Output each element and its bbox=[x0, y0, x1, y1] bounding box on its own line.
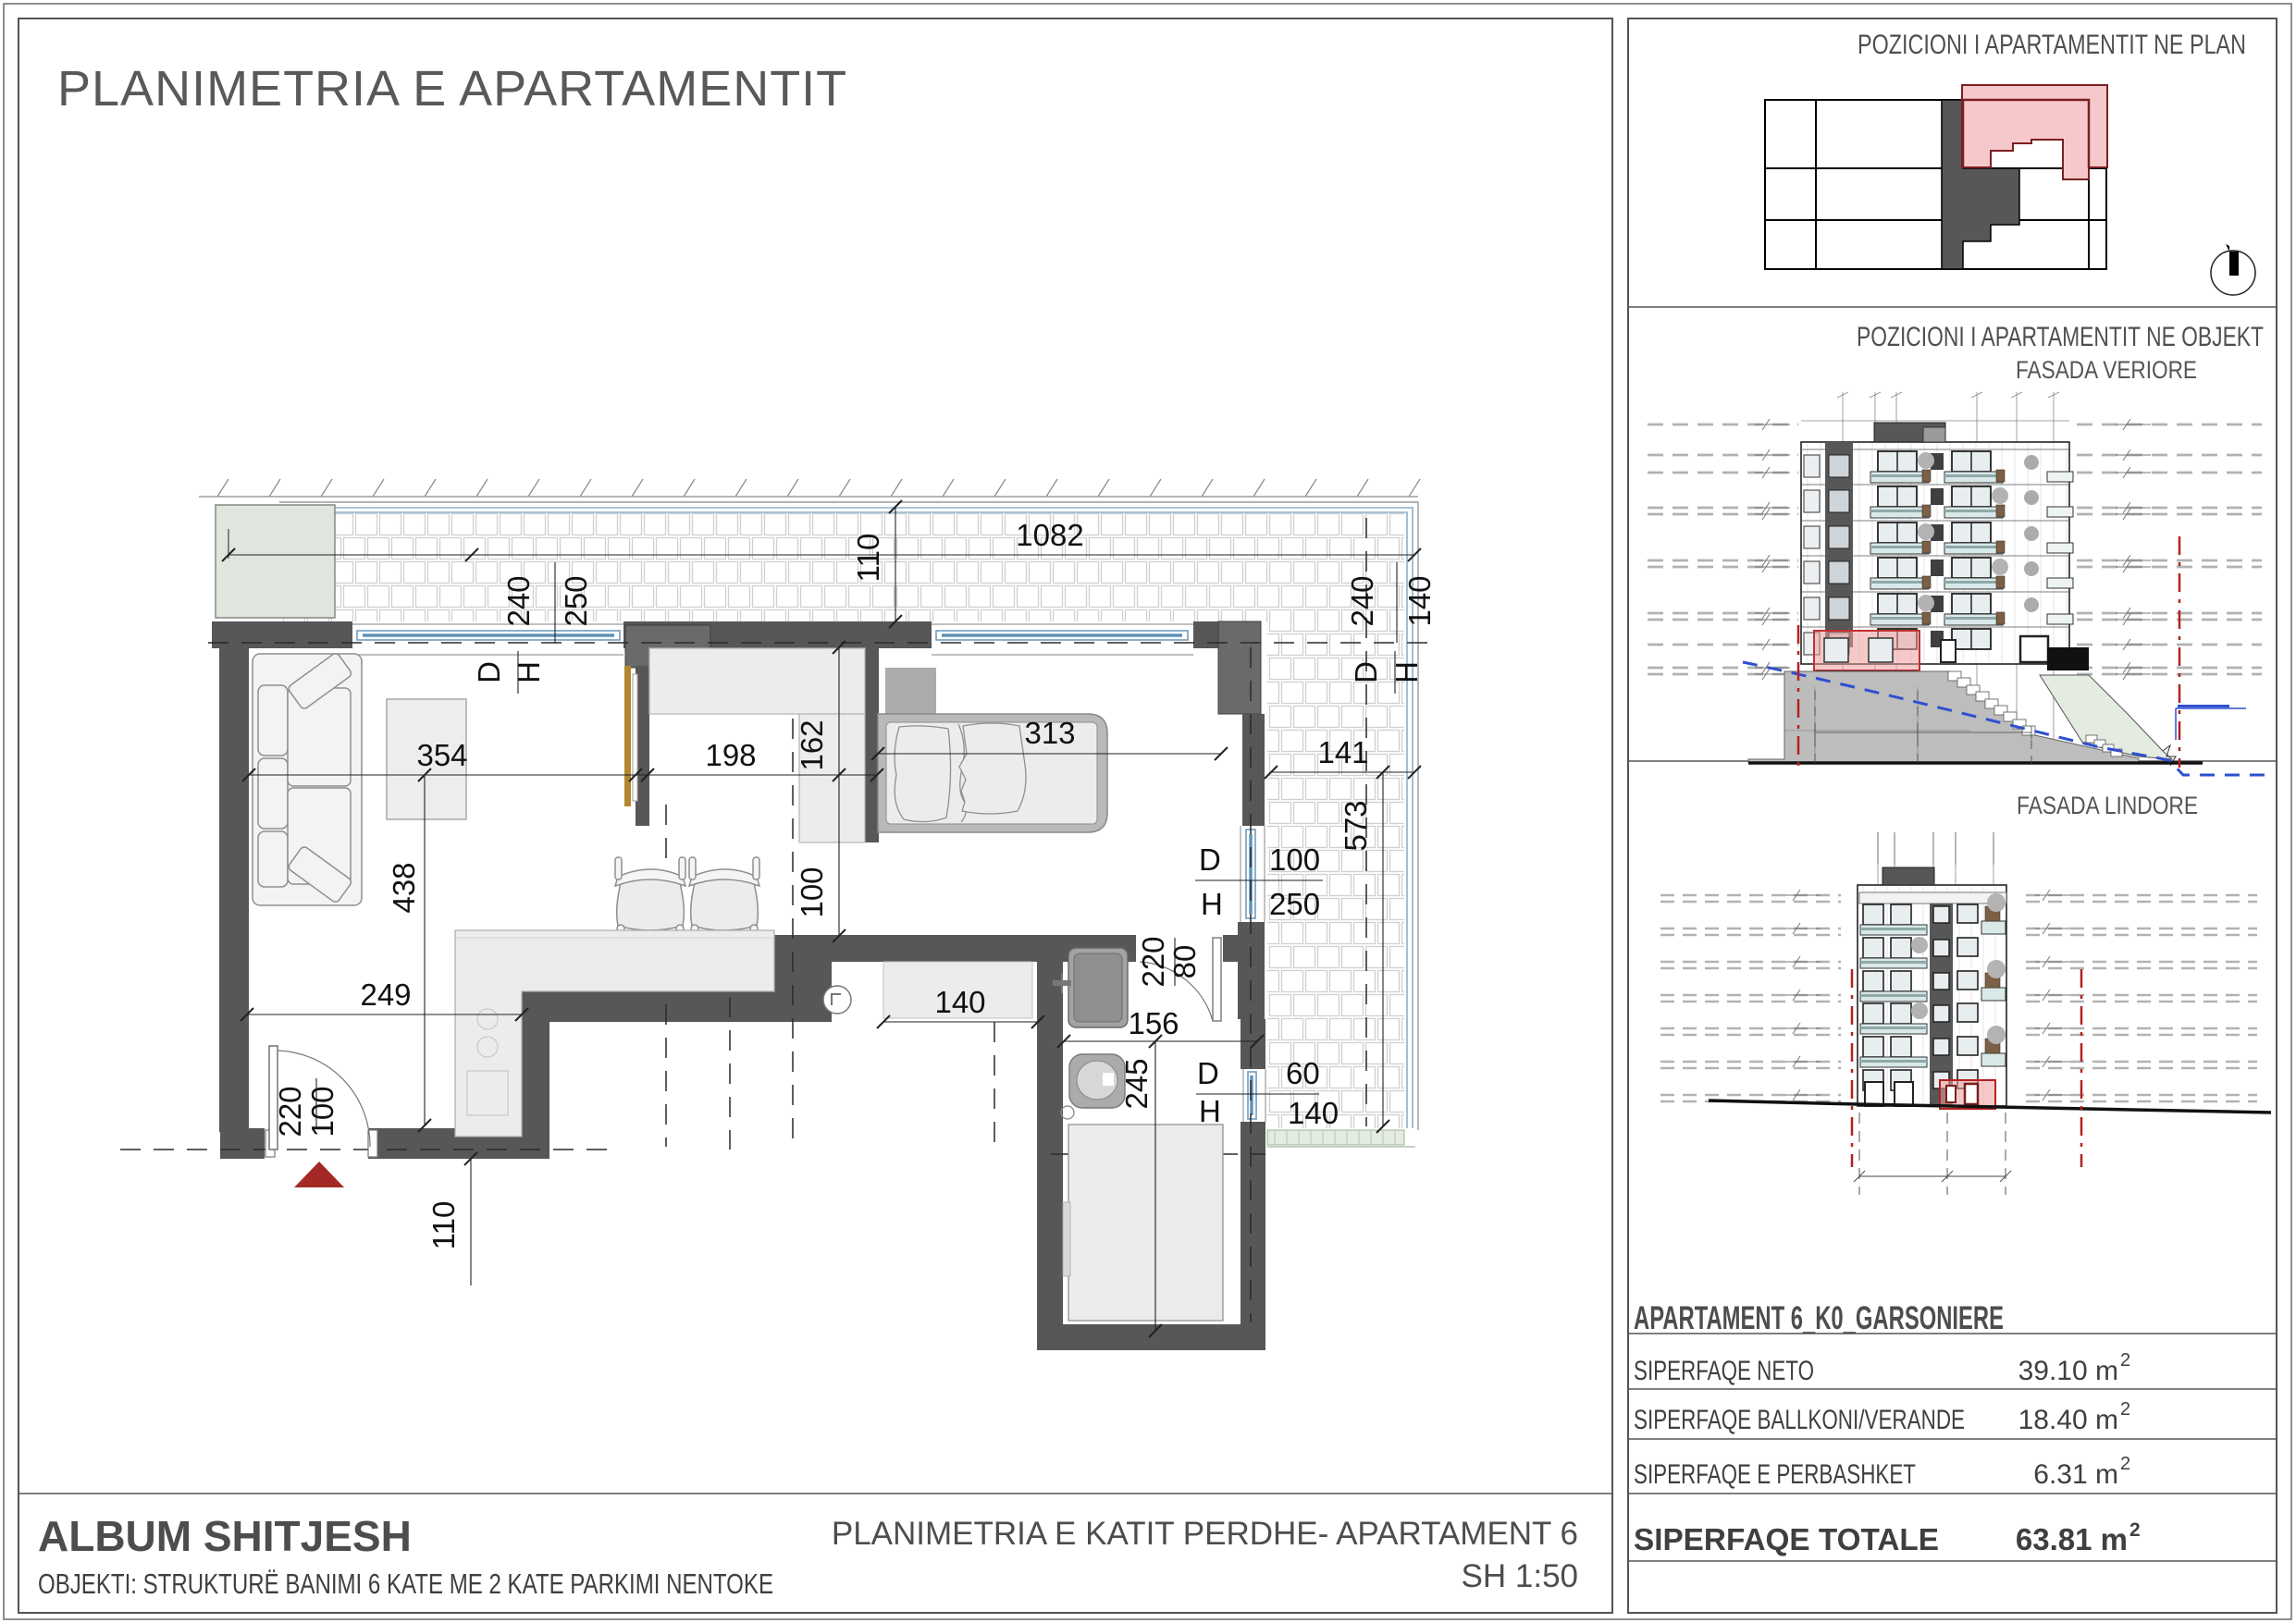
svg-text:SIPERFAQE TOTALE: SIPERFAQE TOTALE bbox=[1634, 1522, 1939, 1556]
svg-text:110: 110 bbox=[851, 534, 885, 583]
svg-text:140: 140 bbox=[1288, 1096, 1339, 1130]
svg-text:SIPERFAQE NETO: SIPERFAQE NETO bbox=[1634, 1356, 1814, 1386]
svg-text:FASADA VERIORE: FASADA VERIORE bbox=[2016, 356, 2197, 384]
svg-text:313: 313 bbox=[1024, 716, 1075, 750]
svg-text:SIPERFAQE BALLKONI/VERANDE: SIPERFAQE BALLKONI/VERANDE bbox=[1634, 1405, 1965, 1435]
svg-text:6.31 m: 6.31 m bbox=[2033, 1459, 2118, 1490]
svg-text:63.81 m: 63.81 m bbox=[2016, 1522, 2128, 1556]
svg-text:POZICIONI I APARTAMENTIT NE PL: POZICIONI I APARTAMENTIT NE PLAN bbox=[1858, 30, 2246, 60]
svg-text:D: D bbox=[1199, 842, 1221, 877]
svg-text:60: 60 bbox=[1286, 1056, 1320, 1090]
svg-text:100: 100 bbox=[1269, 842, 1320, 877]
svg-text:PLANIMETRIA E KATIT PERDHE- AP: PLANIMETRIA E KATIT PERDHE- APARTAMENT 6 bbox=[832, 1516, 1578, 1552]
svg-text:2: 2 bbox=[2120, 1399, 2130, 1420]
svg-text:ALBUM SHITJESH: ALBUM SHITJESH bbox=[38, 1512, 412, 1560]
svg-text:H: H bbox=[1199, 1094, 1221, 1128]
svg-text:249: 249 bbox=[360, 977, 411, 1012]
svg-text:220: 220 bbox=[1136, 936, 1170, 987]
svg-text:240: 240 bbox=[1345, 575, 1379, 626]
svg-text:H: H bbox=[512, 661, 546, 683]
svg-text:156: 156 bbox=[1128, 1006, 1179, 1040]
svg-text:39.10 m: 39.10 m bbox=[2018, 1356, 2118, 1386]
svg-text:80: 80 bbox=[1167, 945, 1202, 979]
svg-text:OBJEKTI: STRUKTURË BANIMI 6 KA: OBJEKTI: STRUKTURË BANIMI 6 KATE ME 2 KA… bbox=[38, 1568, 773, 1600]
svg-text:141: 141 bbox=[1317, 735, 1368, 769]
svg-text:APARTAMENT 6_K0_GARSONIERE: APARTAMENT 6_K0_GARSONIERE bbox=[1634, 1300, 2004, 1336]
svg-text:1082: 1082 bbox=[1016, 518, 1083, 552]
svg-text:H: H bbox=[1201, 887, 1223, 921]
svg-text:FASADA LINDORE: FASADA LINDORE bbox=[2017, 792, 2198, 819]
svg-text:198: 198 bbox=[705, 738, 756, 772]
svg-text:2: 2 bbox=[2120, 1454, 2130, 1474]
svg-text:245: 245 bbox=[1119, 1058, 1154, 1109]
svg-text:250: 250 bbox=[1269, 887, 1320, 921]
svg-text:18.40 m: 18.40 m bbox=[2018, 1405, 2118, 1435]
svg-text:100: 100 bbox=[795, 867, 829, 917]
svg-text:162: 162 bbox=[795, 719, 829, 770]
svg-text:2: 2 bbox=[2129, 1519, 2141, 1541]
svg-text:240: 240 bbox=[501, 575, 536, 626]
svg-text:573: 573 bbox=[1339, 800, 1373, 851]
svg-text:SH 1:50: SH 1:50 bbox=[1462, 1558, 1578, 1594]
svg-text:D: D bbox=[1349, 661, 1383, 683]
svg-text:SIPERFAQE E PERBASHKET: SIPERFAQE E PERBASHKET bbox=[1634, 1459, 1916, 1490]
svg-text:250: 250 bbox=[559, 575, 593, 626]
svg-text:140: 140 bbox=[1402, 575, 1437, 626]
svg-text:PLANIMETRIA E APARTAMENTIT: PLANIMETRIA E APARTAMENTIT bbox=[57, 61, 847, 117]
svg-text:D: D bbox=[472, 661, 506, 683]
svg-text:2: 2 bbox=[2120, 1350, 2130, 1371]
svg-text:H: H bbox=[1389, 661, 1424, 683]
svg-text:438: 438 bbox=[387, 862, 421, 913]
svg-text:100: 100 bbox=[305, 1086, 339, 1137]
svg-text:110: 110 bbox=[426, 1201, 461, 1250]
svg-text:POZICIONI I APARTAMENTIT NE OB: POZICIONI I APARTAMENTIT NE OBJEKT bbox=[1857, 322, 2264, 352]
svg-text:354: 354 bbox=[416, 738, 467, 772]
svg-text:140: 140 bbox=[934, 985, 985, 1019]
svg-text:220: 220 bbox=[273, 1086, 307, 1137]
svg-text:D: D bbox=[1197, 1056, 1219, 1090]
